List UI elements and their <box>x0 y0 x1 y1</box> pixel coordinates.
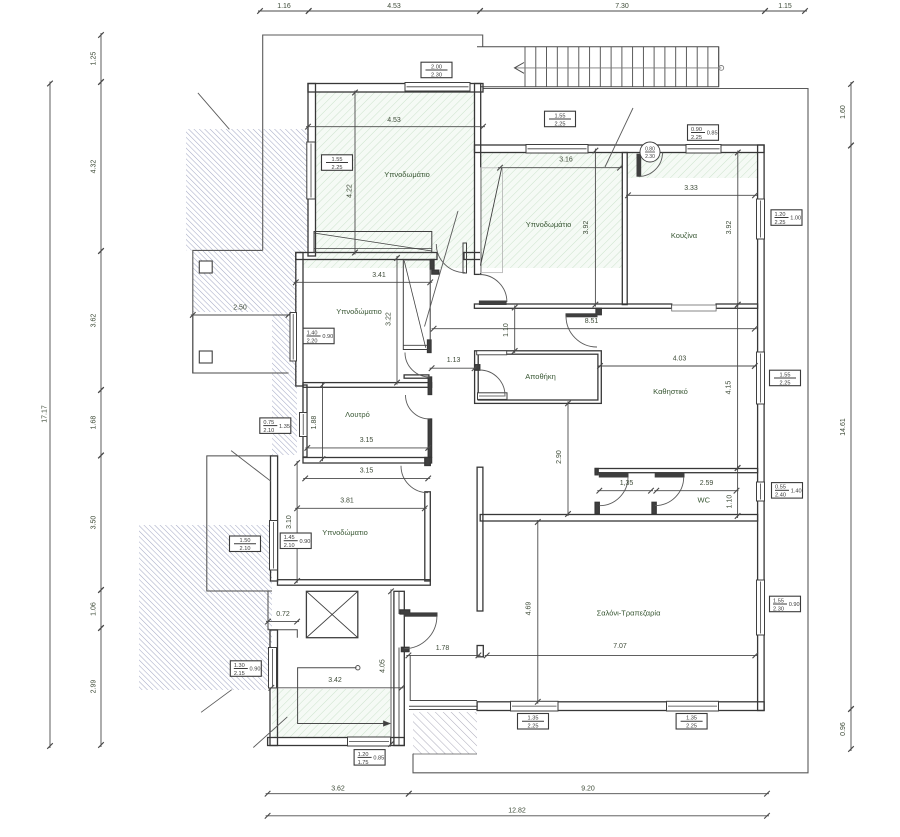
svg-text:0.90: 0.90 <box>789 602 800 608</box>
svg-text:1.78: 1.78 <box>436 645 450 652</box>
svg-text:1,35: 1,35 <box>620 480 634 487</box>
svg-text:3.81: 3.81 <box>340 498 354 505</box>
svg-text:3.92: 3.92 <box>726 221 733 235</box>
svg-text:4.03: 4.03 <box>673 356 687 363</box>
svg-text:0.85: 0.85 <box>373 756 384 762</box>
svg-text:3.15: 3.15 <box>360 437 374 444</box>
svg-text:1.16: 1.16 <box>277 3 291 10</box>
svg-text:2.15: 2.15 <box>234 671 245 677</box>
svg-text:4.32: 4.32 <box>91 160 98 174</box>
svg-text:1.35: 1.35 <box>279 424 290 430</box>
svg-text:3.42: 3.42 <box>328 677 342 684</box>
svg-text:1.00: 1.00 <box>790 216 801 222</box>
svg-text:0.90: 0.90 <box>299 539 310 545</box>
svg-text:WC: WC <box>698 496 711 505</box>
svg-text:2.30: 2.30 <box>645 154 655 160</box>
svg-text:0.55: 0.55 <box>775 485 786 491</box>
svg-text:0.96: 0.96 <box>840 722 847 736</box>
svg-text:0.90: 0.90 <box>322 334 333 340</box>
svg-text:2.99: 2.99 <box>91 680 98 694</box>
svg-text:2.10: 2.10 <box>263 428 274 434</box>
svg-text:4.22: 4.22 <box>347 184 354 198</box>
svg-text:1.55: 1.55 <box>332 157 343 163</box>
svg-text:12.82: 12.82 <box>508 808 526 815</box>
svg-text:0.90: 0.90 <box>691 127 702 133</box>
svg-text:7.30: 7.30 <box>615 3 629 10</box>
svg-text:1.75: 1.75 <box>358 760 369 766</box>
svg-text:Αποθήκη: Αποθήκη <box>525 372 556 381</box>
svg-text:2.00: 2.00 <box>431 64 442 70</box>
svg-text:2.25: 2.25 <box>555 121 566 127</box>
svg-text:4.53: 4.53 <box>387 117 401 124</box>
svg-text:4.69: 4.69 <box>526 602 533 616</box>
svg-text:0.72: 0.72 <box>276 611 290 618</box>
svg-text:3.92: 3.92 <box>583 221 590 235</box>
svg-text:2.59: 2.59 <box>700 480 714 487</box>
svg-text:2.90: 2.90 <box>556 450 563 464</box>
svg-text:1.55: 1.55 <box>773 598 784 604</box>
svg-text:Κουζίνα: Κουζίνα <box>671 231 698 240</box>
svg-text:4.05: 4.05 <box>380 659 387 673</box>
svg-text:Καθηστικό: Καθηστικό <box>653 387 688 396</box>
svg-text:1.13: 1.13 <box>447 357 461 364</box>
svg-text:1.35: 1.35 <box>686 716 697 722</box>
svg-text:1.40: 1.40 <box>307 330 318 336</box>
svg-text:7.07: 7.07 <box>613 643 627 650</box>
svg-text:Υπνοδωμάτιο: Υπνοδωμάτιο <box>384 170 430 179</box>
svg-text:1.06: 1.06 <box>91 602 98 616</box>
svg-text:1.88: 1.88 <box>311 416 318 430</box>
svg-text:2.40: 2.40 <box>775 493 786 499</box>
svg-text:17.17: 17.17 <box>42 405 49 423</box>
svg-text:1.35: 1.35 <box>528 716 539 722</box>
svg-text:3.41: 3.41 <box>372 272 386 279</box>
svg-text:1.20: 1.20 <box>358 752 369 758</box>
svg-text:4.15: 4.15 <box>726 381 733 395</box>
svg-text:1.25: 1.25 <box>91 52 98 66</box>
svg-text:2.50: 2.50 <box>233 305 247 312</box>
svg-text:2.10: 2.10 <box>284 543 295 549</box>
svg-text:1.55: 1.55 <box>555 113 566 119</box>
svg-text:2.30: 2.30 <box>773 606 784 612</box>
svg-text:Υπνοδώματιο: Υπνοδώματιο <box>322 528 368 537</box>
svg-text:Υπνοδωμάτιο: Υπνοδωμάτιο <box>526 220 572 229</box>
svg-text:4.53: 4.53 <box>387 3 401 10</box>
svg-text:3.50: 3.50 <box>91 516 98 530</box>
svg-text:2.20: 2.20 <box>307 338 318 344</box>
svg-text:Υπνοδώματιο: Υπνοδώματιο <box>336 307 382 316</box>
svg-text:1.10: 1.10 <box>503 323 510 337</box>
svg-text:1.45: 1.45 <box>284 535 295 541</box>
svg-text:2.25: 2.25 <box>528 724 539 730</box>
svg-text:Σαλόνι-Τραπεζαρία: Σαλόνι-Τραπεζαρία <box>597 609 661 618</box>
svg-text:2.30: 2.30 <box>431 72 442 78</box>
svg-text:3.62: 3.62 <box>91 314 98 328</box>
svg-text:Λουτρό: Λουτρό <box>345 410 370 419</box>
svg-text:2.25: 2.25 <box>691 135 702 141</box>
svg-text:1.40: 1.40 <box>791 489 802 495</box>
svg-text:2.25: 2.25 <box>332 165 343 171</box>
svg-text:1.20: 1.20 <box>775 212 786 218</box>
svg-text:2.25: 2.25 <box>780 380 791 386</box>
svg-text:0.85: 0.85 <box>707 131 718 137</box>
svg-text:1.10: 1.10 <box>727 495 734 509</box>
svg-text:9.20: 9.20 <box>581 786 595 793</box>
svg-text:1.55: 1.55 <box>780 372 791 378</box>
svg-text:2.25: 2.25 <box>775 220 786 226</box>
svg-text:1.15: 1.15 <box>778 3 792 10</box>
svg-text:2.25: 2.25 <box>686 724 697 730</box>
svg-text:3.62: 3.62 <box>331 786 345 793</box>
svg-text:3.33: 3.33 <box>684 185 698 192</box>
svg-text:1.60: 1.60 <box>840 105 847 119</box>
svg-text:1.50: 1.50 <box>240 538 251 544</box>
svg-text:1.68: 1.68 <box>91 416 98 430</box>
svg-text:3.15: 3.15 <box>360 468 374 475</box>
svg-text:8.51: 8.51 <box>585 318 599 325</box>
svg-text:14.61: 14.61 <box>840 418 847 436</box>
svg-text:1.30: 1.30 <box>234 663 245 669</box>
svg-text:0.90: 0.90 <box>250 667 261 673</box>
svg-text:2.10: 2.10 <box>240 546 251 552</box>
svg-text:3.16: 3.16 <box>559 157 573 164</box>
svg-text:3.22: 3.22 <box>386 312 393 326</box>
svg-text:3.10: 3.10 <box>286 515 293 529</box>
svg-text:0.75: 0.75 <box>263 420 274 426</box>
